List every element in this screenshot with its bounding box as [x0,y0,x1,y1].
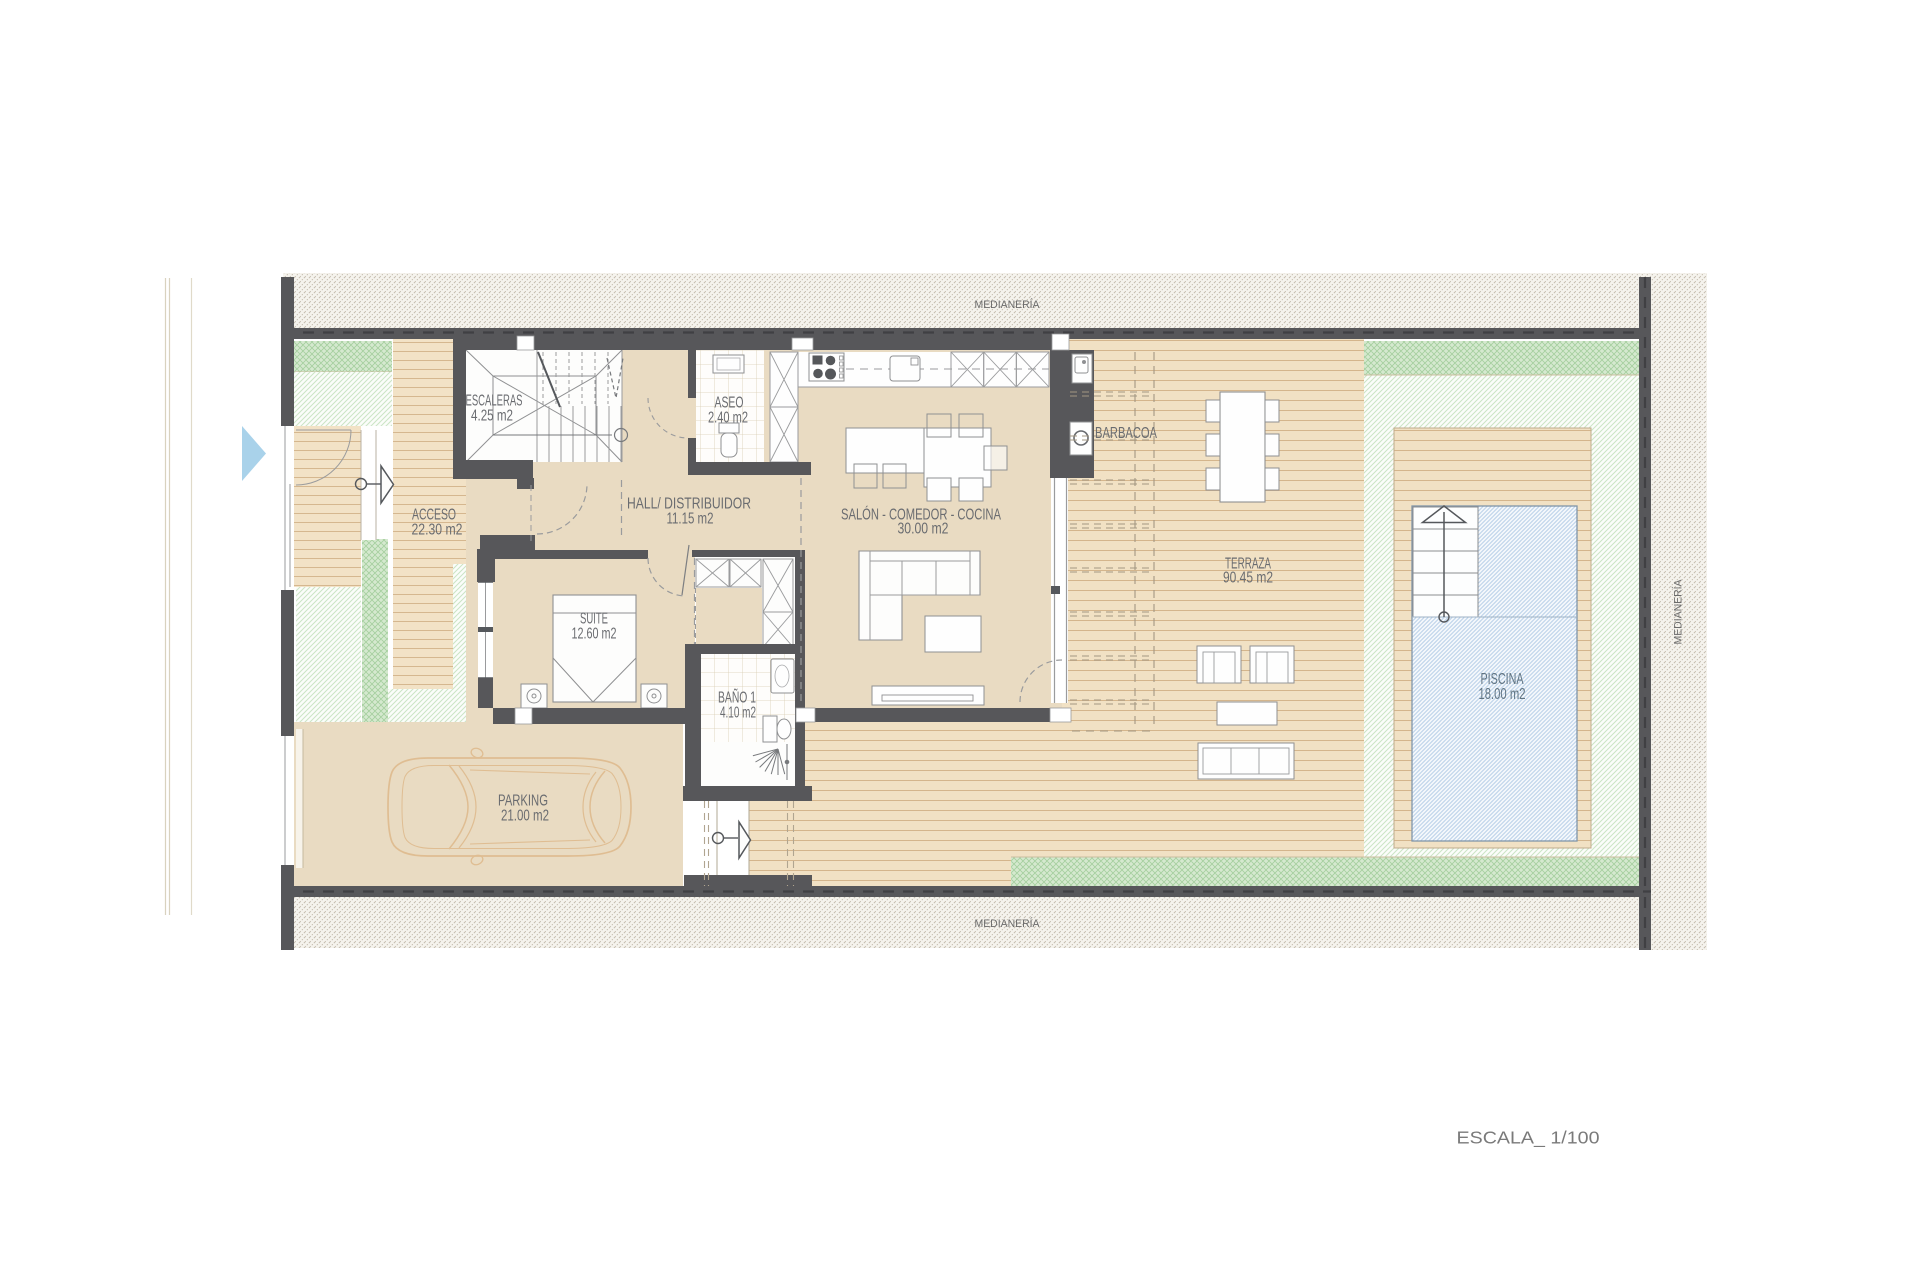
svg-text:2.40 m2: 2.40 m2 [708,410,748,427]
svg-text:4.25 m2: 4.25 m2 [471,408,513,425]
svg-text:ESCALA_ 1/100: ESCALA_ 1/100 [1457,1128,1600,1149]
svg-text:22.30 m2: 22.30 m2 [412,522,463,539]
svg-text:4.10 m2: 4.10 m2 [720,705,756,722]
svg-text:MEDIANERÍA: MEDIANERÍA [975,298,1041,311]
svg-text:MEDIANERÍA: MEDIANERÍA [975,917,1041,930]
svg-text:18.00 m2: 18.00 m2 [1479,686,1526,703]
svg-text:MEDIANERÍA: MEDIANERÍA [1672,579,1685,645]
svg-text:90.45 m2: 90.45 m2 [1223,570,1273,587]
svg-text:12.60 m2: 12.60 m2 [572,626,617,643]
svg-text:30.00 m2: 30.00 m2 [898,521,949,538]
svg-text:BARBACOA: BARBACOA [1095,425,1157,442]
svg-text:11.15 m2: 11.15 m2 [667,511,714,528]
svg-text:21.00 m2: 21.00 m2 [501,808,549,825]
